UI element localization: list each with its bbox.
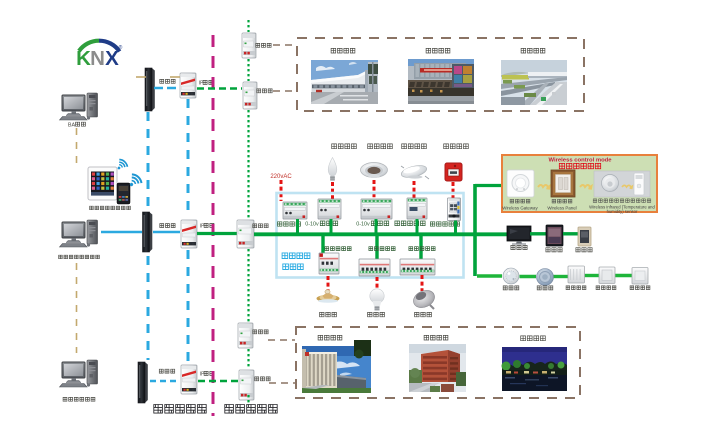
svg-text:0-10v: 0-10v: [356, 222, 370, 228]
svg-text:®: ®: [119, 44, 123, 51]
svg-text:0-10v: 0-10v: [305, 222, 319, 228]
svg-text:Wireless Panel: Wireless Panel: [547, 206, 576, 211]
svg-text:BA: BA: [68, 122, 76, 128]
svg-text:N: N: [90, 47, 105, 70]
svg-text:humidity) sensor: humidity) sensor: [607, 209, 638, 214]
svg-text:K: K: [76, 47, 91, 70]
svg-text:220vAC: 220vAC: [270, 174, 292, 180]
svg-text:Wireless Gateway: Wireless Gateway: [502, 206, 538, 211]
svg-text:Wireless control mode: Wireless control mode: [548, 158, 612, 164]
svg-text:X: X: [105, 47, 119, 70]
